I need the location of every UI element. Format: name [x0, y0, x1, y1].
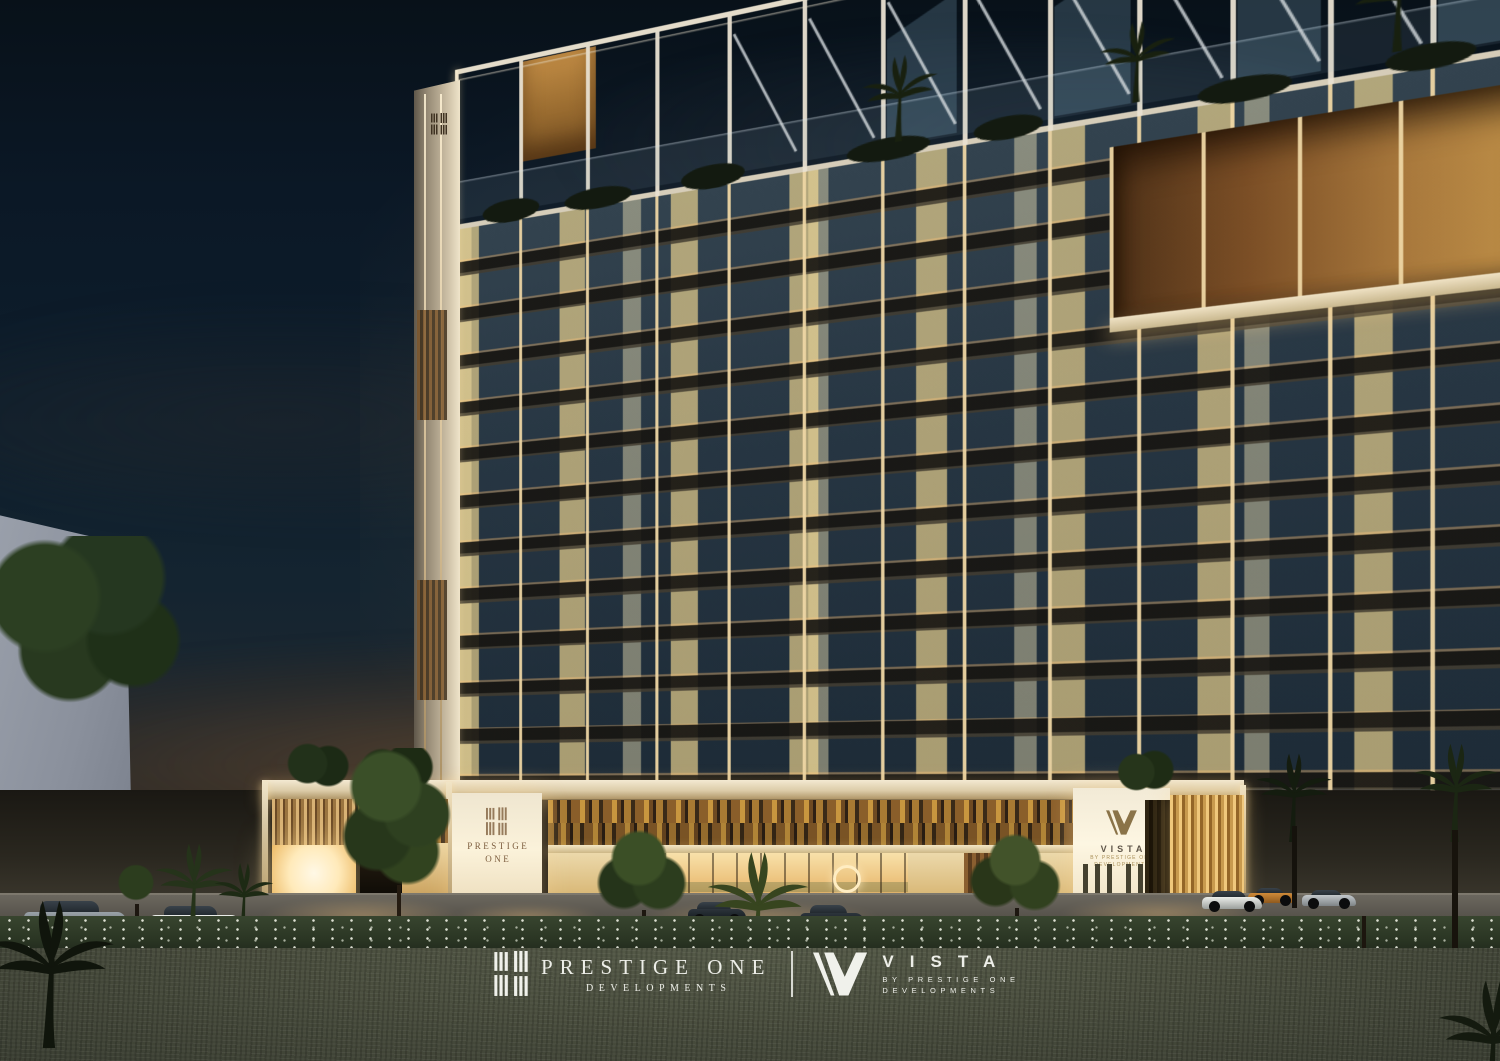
- vista-logo: VISTA BY PRESTIGE ONE DEVELOPMENTS: [813, 952, 1019, 996]
- prestige-one-logo-icon: [486, 807, 508, 836]
- prestige-one-logo: PRESTIGE ONE DEVELOPMENTS: [494, 951, 771, 997]
- tower-side-wall: [414, 80, 460, 790]
- vista-logo-byline: DEVELOPMENTS: [882, 986, 1019, 995]
- vista-logo-byline: BY PRESTIGE ONE: [882, 975, 1019, 984]
- tree: [594, 824, 694, 922]
- tree: [330, 740, 470, 895]
- tower-south-facade: [455, 0, 1500, 790]
- vista-v-logo-icon: [1106, 810, 1138, 835]
- footer-logos: PRESTIGE ONE DEVELOPMENTS VISTA BY PREST…: [494, 951, 1020, 997]
- tree: [0, 536, 196, 726]
- vista-logo-name: VISTA: [882, 952, 1019, 972]
- podium-roof-tree: [1104, 750, 1176, 794]
- car: [1202, 891, 1262, 912]
- prestige-one-logo-division: DEVELOPMENTS: [541, 983, 771, 994]
- palm-trunk: [1452, 830, 1458, 950]
- wood-mosaic-band: [548, 800, 1086, 823]
- prestige-one-logo-name: PRESTIGE ONE: [541, 955, 771, 980]
- palm-tree: [1408, 742, 1500, 842]
- foreground-palm-silhouette: [0, 898, 136, 1048]
- prestige-one-logo-icon: [494, 951, 530, 997]
- tree: [968, 828, 1066, 920]
- foreground-agave-silhouette: [1428, 978, 1500, 1061]
- vista-v-logo-icon: [813, 952, 869, 996]
- vista-tower: [455, 70, 1355, 790]
- prestige-one-crown-logo-icon: [431, 112, 448, 136]
- logo-divider: [791, 951, 793, 997]
- night-rendering-scene: PRESTIGE ONE VISTA BY PRESTIGE ONE DEVEL…: [0, 0, 1500, 1061]
